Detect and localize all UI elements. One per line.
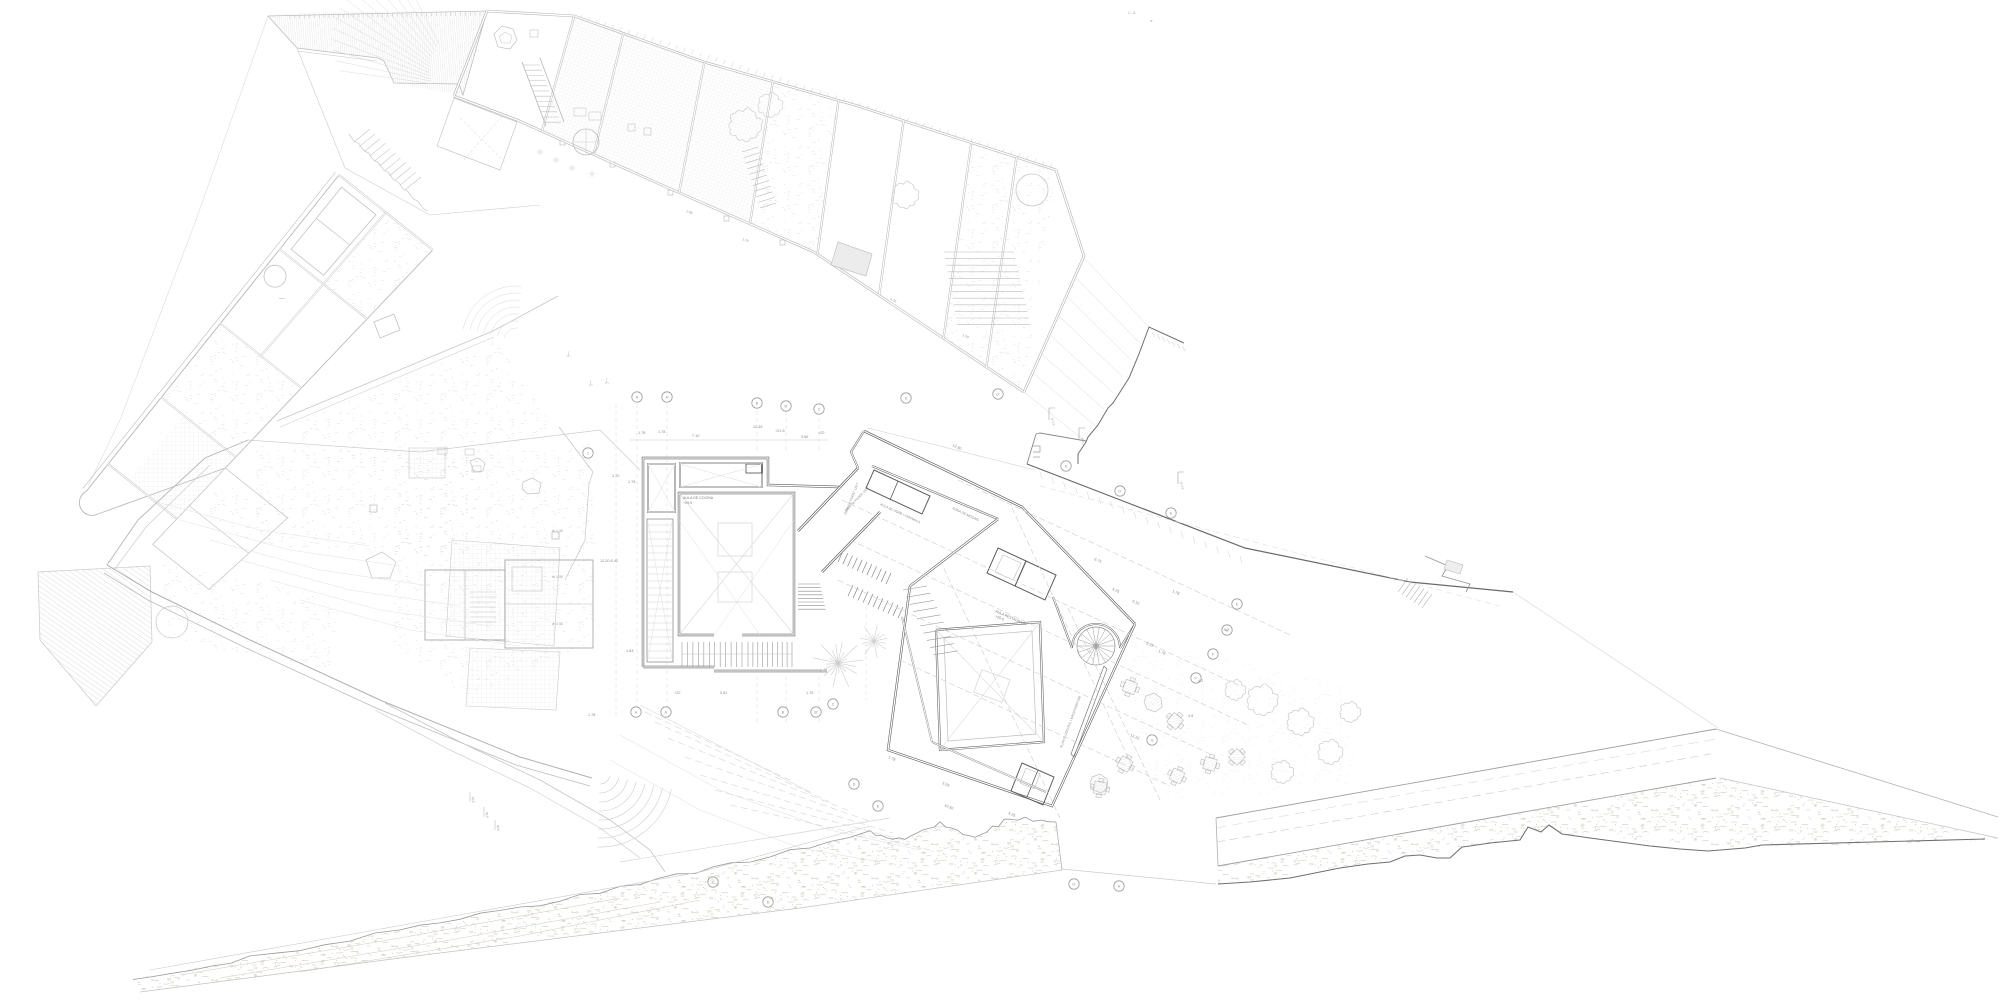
svg-text:D: D — [853, 782, 856, 786]
svg-text:7.10: 7.10 — [692, 434, 699, 438]
svg-text:1.70: 1.70 — [612, 474, 619, 478]
svg-text:9.2: 9.2 — [1224, 628, 1229, 632]
svg-text:12.20 8.42: 12.20 8.42 — [600, 559, 618, 563]
svg-text:1: 1 — [587, 451, 589, 455]
svg-text:C. A: C. A — [1128, 10, 1136, 15]
svg-text:B': B' — [784, 404, 787, 408]
svg-text:1.78: 1.78 — [658, 430, 665, 434]
svg-text:D: D — [905, 396, 908, 400]
svg-text:1.78: 1.78 — [588, 713, 595, 717]
svg-text:A': A' — [665, 395, 668, 399]
svg-text:3.66: 3.66 — [801, 435, 808, 439]
svg-text:B': B' — [814, 710, 817, 714]
svg-text:⊕ 1.30: ⊕ 1.30 — [552, 622, 563, 626]
svg-text:D': D' — [1118, 489, 1122, 493]
svg-text:1.78: 1.78 — [638, 431, 645, 435]
svg-text:⊕ 1.30: ⊕ 1.30 — [552, 529, 563, 533]
svg-text:0.81: 0.81 — [720, 691, 727, 695]
svg-text:+22: +22 — [818, 431, 824, 435]
svg-text:12.45: 12.45 — [753, 425, 763, 429]
svg-text:+29.5: +29.5 — [683, 501, 692, 505]
svg-text:1.83: 1.83 — [626, 649, 633, 653]
svg-text:⊕ 1.30: ⊕ 1.30 — [552, 575, 563, 579]
svg-text:D: D — [1065, 464, 1068, 468]
svg-text:+22: +22 — [674, 691, 680, 695]
svg-text:C: C — [832, 702, 835, 706]
svg-text:D': D' — [996, 392, 1000, 396]
svg-text:C: C — [818, 407, 821, 411]
svg-text:G': G' — [1072, 882, 1076, 886]
svg-text:AULA DE COCINA: AULA DE COCINA — [683, 496, 714, 500]
svg-text:1.78: 1.78 — [628, 480, 635, 484]
svg-text:A': A' — [664, 710, 667, 714]
svg-text:1.75: 1.75 — [806, 691, 813, 695]
svg-text:H: H — [1118, 884, 1121, 888]
svg-text:+21.5: +21.5 — [775, 429, 785, 433]
